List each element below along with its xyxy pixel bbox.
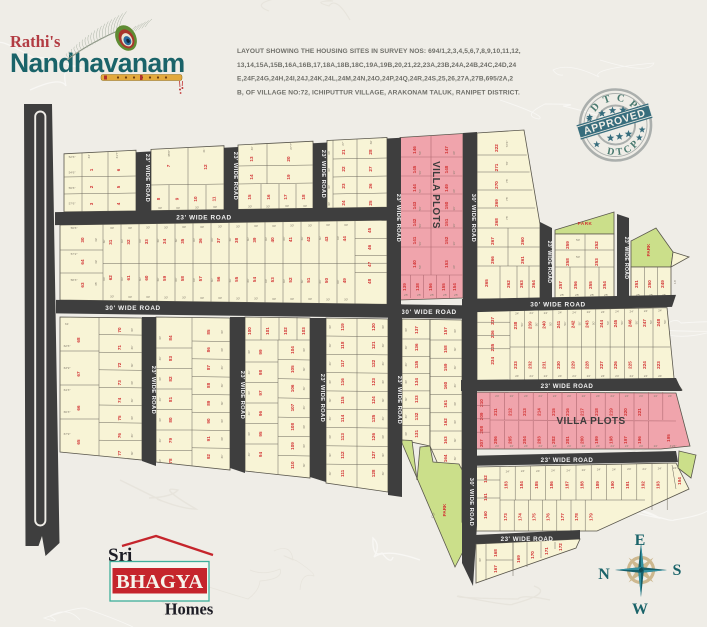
svg-text:25: 25 (368, 200, 373, 206)
svg-text:96: 96 (258, 411, 263, 417)
svg-text:20: 20 (286, 156, 291, 162)
svg-text:30': 30' (452, 170, 456, 174)
svg-text:190: 190 (610, 481, 615, 489)
svg-text:50': 50' (418, 170, 422, 174)
svg-text:66'3": 66'3" (64, 410, 71, 414)
svg-text:23' WIDE ROAD: 23' WIDE ROAD (541, 457, 594, 464)
svg-text:218: 218 (594, 408, 599, 416)
svg-text:212: 212 (508, 408, 513, 416)
svg-text:260: 260 (520, 237, 525, 245)
svg-text:184: 184 (519, 481, 524, 489)
svg-text:30': 30' (220, 436, 224, 440)
svg-text:123: 123 (371, 378, 376, 386)
svg-text:194: 194 (677, 477, 682, 485)
svg-text:30': 30' (200, 296, 204, 300)
svg-text:255: 255 (588, 281, 593, 289)
svg-text:24': 24' (515, 374, 519, 378)
svg-text:99: 99 (258, 349, 263, 355)
svg-text:263: 263 (519, 280, 524, 288)
svg-text:40': 40' (247, 432, 251, 436)
svg-text:24': 24' (610, 444, 614, 448)
svg-text:114: 114 (340, 414, 345, 422)
svg-text:30': 30' (381, 325, 385, 329)
svg-text:30': 30' (381, 379, 385, 383)
svg-text:19: 19 (286, 174, 291, 180)
svg-text:54'6": 54'6" (69, 171, 76, 175)
svg-text:30' WIDE ROAD: 30' WIDE ROAD (470, 194, 476, 242)
svg-text:30': 30' (328, 361, 332, 365)
svg-text:60': 60' (192, 277, 196, 281)
svg-text:49': 49' (94, 260, 98, 264)
svg-text:90: 90 (206, 418, 211, 424)
svg-text:30' WIDE ROAD: 30' WIDE ROAD (401, 309, 456, 316)
svg-text:24': 24' (658, 467, 662, 471)
svg-text:54: 54 (252, 277, 257, 283)
svg-text:79: 79 (168, 438, 173, 444)
svg-text:88: 88 (206, 382, 211, 388)
svg-text:168: 168 (493, 549, 498, 557)
svg-text:259: 259 (565, 241, 570, 249)
svg-text:30': 30' (328, 343, 332, 347)
svg-text:230: 230 (556, 361, 561, 369)
svg-text:264: 264 (531, 280, 536, 288)
svg-text:24': 24' (582, 468, 586, 472)
svg-text:E,24F,24G,24H,24I,24J,24K,24L,: E,24F,24G,24H,24I,24J,24K,24L,24M,24N,24… (237, 76, 513, 83)
svg-text:60': 60' (156, 238, 160, 242)
svg-text:30': 30' (453, 383, 457, 387)
svg-text:240: 240 (542, 321, 547, 329)
svg-text:24': 24' (625, 394, 629, 398)
svg-text:30': 30' (328, 379, 332, 383)
svg-text:67: 67 (76, 371, 81, 377)
svg-text:211: 211 (493, 408, 498, 416)
svg-text:30': 30' (220, 365, 224, 369)
svg-text:41': 41' (202, 148, 206, 152)
svg-text:199: 199 (594, 436, 599, 444)
svg-text:24': 24' (642, 467, 646, 471)
svg-text:24': 24' (639, 394, 643, 398)
svg-text:4: 4 (116, 202, 121, 205)
svg-text:176: 176 (546, 513, 551, 521)
svg-text:24': 24' (625, 444, 629, 448)
svg-text:60': 60' (336, 235, 340, 239)
svg-text:153: 153 (444, 260, 449, 268)
svg-text:50': 50' (649, 320, 653, 324)
svg-text:21: 21 (341, 149, 346, 155)
svg-text:188: 188 (580, 481, 585, 489)
svg-text:87: 87 (206, 365, 211, 371)
svg-text:56'6": 56'6" (71, 226, 78, 230)
svg-text:219: 219 (608, 408, 613, 416)
svg-text:237: 237 (490, 317, 495, 325)
svg-text:257: 257 (558, 281, 563, 289)
svg-text:60': 60' (174, 277, 178, 281)
svg-text:57'2": 57'2" (71, 252, 78, 256)
svg-text:24': 24' (615, 310, 619, 314)
svg-text:128: 128 (371, 469, 376, 477)
svg-text:157: 157 (443, 327, 448, 335)
svg-text:24': 24' (654, 444, 658, 448)
svg-text:60': 60' (174, 238, 178, 242)
svg-text:187: 187 (564, 481, 569, 489)
svg-text:50': 50' (418, 189, 422, 193)
svg-text:40': 40' (247, 370, 251, 374)
svg-text:50': 50' (576, 255, 580, 259)
svg-text:23' WIDE ROAD: 23' WIDE ROAD (232, 152, 238, 200)
svg-text:262: 262 (506, 280, 511, 288)
svg-text:52: 52 (288, 277, 293, 283)
svg-text:24': 24' (510, 394, 514, 398)
svg-text:151: 151 (444, 218, 449, 226)
svg-text:24': 24' (524, 444, 528, 448)
svg-text:60': 60' (102, 239, 106, 243)
svg-text:232: 232 (527, 361, 532, 369)
svg-text:76: 76 (117, 433, 122, 439)
svg-text:258: 258 (565, 258, 570, 266)
svg-text:23' WIDE ROAD: 23' WIDE ROAD (176, 214, 231, 221)
svg-text:40': 40' (247, 452, 251, 456)
svg-text:40': 40' (250, 146, 254, 150)
svg-text:30': 30' (302, 405, 306, 409)
svg-text:183: 183 (504, 481, 509, 489)
svg-text:95: 95 (258, 431, 263, 437)
svg-text:30': 30' (218, 296, 222, 300)
svg-text:50': 50' (592, 321, 596, 325)
svg-text:145: 145 (412, 165, 417, 173)
svg-text:162: 162 (443, 418, 448, 426)
svg-text:60': 60' (282, 279, 286, 283)
svg-text:228: 228 (585, 361, 590, 369)
svg-text:60': 60' (210, 237, 214, 241)
svg-text:30': 30' (344, 298, 348, 302)
svg-text:30': 30' (302, 386, 306, 390)
svg-text:30': 30' (290, 224, 294, 228)
svg-text:50': 50' (418, 206, 422, 210)
svg-text:189: 189 (595, 481, 600, 489)
svg-text:63: 63 (80, 282, 85, 288)
svg-text:30': 30' (328, 434, 332, 438)
svg-text:24': 24' (551, 469, 555, 473)
svg-text:173: 173 (503, 513, 508, 521)
svg-text:11: 11 (212, 196, 217, 201)
svg-text:24': 24' (587, 310, 591, 314)
svg-text:116: 116 (340, 378, 345, 386)
svg-text:33': 33' (327, 151, 331, 155)
svg-text:64'3": 64'3" (64, 388, 71, 392)
svg-text:24': 24' (544, 374, 548, 378)
svg-text:226: 226 (613, 361, 618, 369)
svg-text:115: 115 (340, 396, 345, 404)
svg-text:60': 60' (282, 236, 286, 240)
svg-text:30': 30' (381, 453, 385, 457)
svg-text:75: 75 (117, 415, 122, 421)
svg-text:24': 24' (566, 468, 570, 472)
svg-text:24': 24' (615, 374, 619, 378)
svg-text:24': 24' (644, 309, 648, 313)
svg-text:167: 167 (493, 565, 498, 573)
svg-text:30': 30' (176, 206, 180, 210)
svg-text:142: 142 (412, 218, 417, 226)
svg-text:132: 132 (414, 412, 419, 420)
svg-text:30': 30' (182, 225, 186, 229)
svg-text:VILLA PLOTS: VILLA PLOTS (430, 161, 441, 229)
svg-text:1: 1 (89, 168, 94, 171)
svg-text:233: 233 (513, 361, 518, 369)
svg-text:39: 39 (252, 237, 257, 243)
svg-text:24': 24' (529, 311, 533, 315)
svg-text:203: 203 (536, 436, 541, 444)
svg-text:40': 40' (158, 336, 162, 340)
svg-text:30': 30' (146, 295, 150, 299)
svg-text:111: 111 (340, 469, 345, 477)
svg-text:60': 60' (264, 236, 268, 240)
svg-text:24': 24' (597, 468, 601, 472)
svg-text:23' WIDE ROAD: 23' WIDE ROAD (395, 194, 401, 242)
svg-text:205: 205 (508, 436, 513, 444)
svg-text:248: 248 (656, 318, 661, 326)
svg-text:30': 30' (327, 168, 331, 172)
svg-text:17: 17 (283, 194, 288, 200)
svg-text:23' WIDE ROAD: 23' WIDE ROAD (319, 374, 325, 422)
svg-text:24': 24' (515, 312, 519, 316)
svg-text:40': 40' (247, 391, 251, 395)
svg-text:50': 50' (520, 322, 524, 326)
svg-text:36': 36' (369, 140, 373, 144)
svg-text:200: 200 (580, 436, 585, 444)
svg-text:34: 34 (162, 238, 167, 244)
svg-text:30': 30' (130, 451, 134, 455)
svg-text:146: 146 (412, 146, 417, 154)
svg-text:30' WIDE ROAD: 30' WIDE ROAD (530, 302, 585, 309)
svg-text:30': 30' (452, 265, 456, 269)
svg-text:24': 24' (567, 444, 571, 448)
svg-text:270: 270 (494, 181, 499, 189)
svg-text:72'6": 72'6" (505, 141, 509, 148)
svg-text:40: 40 (270, 237, 275, 243)
svg-text:60': 60' (246, 237, 250, 241)
svg-text:30': 30' (453, 438, 457, 442)
svg-text:103: 103 (301, 327, 306, 335)
svg-text:30': 30' (158, 206, 162, 210)
svg-text:30': 30' (182, 296, 186, 300)
svg-text:170: 170 (530, 551, 535, 559)
svg-text:223: 223 (656, 361, 661, 369)
svg-text:Nandhavanam: Nandhavanam (10, 48, 185, 78)
svg-text:61': 61' (65, 322, 69, 326)
svg-text:30': 30' (404, 431, 408, 435)
svg-text:83: 83 (168, 356, 173, 362)
svg-text:164: 164 (443, 454, 448, 462)
svg-text:268: 268 (494, 218, 499, 226)
svg-text:24': 24' (596, 394, 600, 398)
svg-text:10: 10 (193, 196, 198, 202)
svg-text:16: 16 (266, 194, 271, 200)
svg-text:50': 50' (534, 322, 538, 326)
svg-text:216: 216 (565, 408, 570, 416)
svg-text:45: 45 (367, 227, 372, 233)
svg-text:131: 131 (414, 430, 419, 438)
svg-text:25': 25' (560, 293, 564, 297)
svg-text:89: 89 (206, 400, 211, 406)
svg-text:BHAGYA: BHAGYA (116, 571, 203, 593)
svg-text:24': 24' (658, 374, 662, 378)
svg-text:191: 191 (625, 481, 630, 489)
svg-text:221: 221 (637, 408, 642, 416)
svg-text:60': 60' (300, 236, 304, 240)
svg-text:24': 24' (629, 309, 633, 313)
svg-text:24': 24' (610, 394, 614, 398)
svg-text:72: 72 (117, 362, 122, 368)
svg-text:59: 59 (162, 275, 167, 281)
svg-text:246: 246 (628, 319, 633, 327)
svg-text:24': 24' (668, 394, 672, 398)
svg-text:215: 215 (551, 408, 556, 416)
svg-text:143: 143 (412, 201, 417, 209)
svg-text:154: 154 (452, 283, 457, 291)
svg-text:44: 44 (342, 236, 347, 242)
svg-text:109: 109 (290, 442, 295, 450)
svg-text:30': 30' (200, 225, 204, 229)
svg-text:137: 137 (414, 326, 419, 334)
svg-text:251: 251 (634, 280, 639, 288)
svg-text:30': 30' (130, 433, 134, 437)
svg-text:235: 235 (490, 343, 495, 351)
svg-text:5: 5 (116, 185, 121, 188)
svg-text:52'6": 52'6" (69, 155, 76, 159)
svg-text:149: 149 (444, 184, 449, 192)
svg-text:30': 30' (236, 224, 240, 228)
svg-text:31: 31 (108, 239, 113, 245)
svg-text:24': 24' (544, 311, 548, 315)
svg-text:24': 24' (654, 394, 658, 398)
svg-text:245: 245 (613, 319, 618, 327)
svg-text:160: 160 (443, 381, 448, 389)
svg-text:58: 58 (180, 276, 185, 282)
svg-text:30': 30' (130, 328, 134, 332)
svg-text:24': 24' (521, 469, 525, 473)
svg-text:6: 6 (116, 168, 121, 171)
svg-text:30': 30' (220, 419, 224, 423)
svg-text:250: 250 (647, 280, 652, 288)
svg-text:23' WIDE ROAD: 23' WIDE ROAD (501, 536, 554, 543)
svg-text:38'8": 38'8" (167, 150, 171, 157)
svg-text:106: 106 (290, 384, 295, 392)
svg-text:33: 33 (144, 239, 149, 245)
svg-text:50': 50' (606, 320, 610, 324)
svg-text:201: 201 (565, 436, 570, 444)
svg-text:33': 33' (87, 154, 91, 158)
svg-text:78': 78' (505, 161, 509, 165)
svg-text:30': 30' (130, 345, 134, 349)
svg-text:23' WIDE ROAD: 23' WIDE ROAD (623, 237, 629, 280)
svg-text:60: 60 (144, 275, 149, 281)
svg-text:98: 98 (258, 370, 263, 376)
svg-text:40': 40' (158, 397, 162, 401)
svg-text:24': 24' (538, 394, 542, 398)
svg-text:23' WIDE ROAD: 23' WIDE ROAD (144, 154, 150, 202)
svg-text:148: 148 (444, 165, 449, 173)
svg-text:74: 74 (117, 397, 122, 403)
svg-text:24': 24' (538, 444, 542, 448)
svg-text:204: 204 (522, 436, 527, 444)
svg-text:46: 46 (367, 244, 372, 250)
svg-text:40': 40' (247, 411, 251, 415)
svg-text:14: 14 (249, 174, 254, 180)
svg-text:193: 193 (656, 481, 661, 489)
svg-text:30': 30' (404, 328, 408, 332)
svg-text:30': 30' (452, 189, 456, 193)
svg-text:179: 179 (588, 513, 593, 521)
svg-text:49': 49' (94, 238, 98, 242)
svg-text:159: 159 (443, 363, 448, 371)
svg-text:126: 126 (371, 433, 376, 441)
svg-text:23: 23 (341, 183, 346, 189)
svg-text:30': 30' (110, 295, 114, 299)
svg-text:40': 40' (158, 418, 162, 422)
svg-text:13,14,15A,15B,16A,16B,17,18A,1: 13,14,15A,15B,16A,16B,17,18A,18B,18C,19A… (237, 62, 516, 69)
svg-text:23' WIDE ROAD: 23' WIDE ROAD (541, 383, 594, 390)
svg-text:63'9": 63'9" (64, 366, 71, 370)
svg-text:30' WIDE ROAD: 30' WIDE ROAD (105, 305, 160, 312)
svg-text:60': 60' (228, 237, 232, 241)
svg-text:70: 70 (117, 327, 122, 333)
svg-text:30': 30' (254, 224, 258, 228)
svg-text:27': 27' (341, 141, 345, 145)
svg-text:30': 30' (404, 414, 408, 418)
svg-text:W: W (632, 601, 648, 618)
svg-text:62: 62 (108, 275, 113, 281)
svg-text:23' WIDE ROAD: 23' WIDE ROAD (546, 241, 552, 284)
svg-text:24': 24' (639, 444, 643, 448)
svg-text:30': 30' (254, 297, 258, 301)
svg-text:30': 30' (130, 380, 134, 384)
svg-text:234: 234 (490, 357, 495, 365)
svg-text:24': 24' (536, 469, 540, 473)
svg-text:45': 45' (94, 282, 98, 286)
svg-text:50': 50' (549, 321, 553, 325)
svg-text:104: 104 (290, 346, 295, 354)
svg-text:43: 43 (324, 236, 329, 242)
svg-text:175: 175 (532, 513, 537, 521)
svg-text:Homes: Homes (165, 600, 214, 619)
svg-text:30': 30' (220, 383, 224, 387)
svg-text:110: 110 (290, 461, 295, 469)
svg-text:N: N (598, 566, 610, 583)
svg-text:254: 254 (602, 281, 607, 289)
svg-text:30': 30' (213, 205, 217, 209)
svg-text:LAYOUT SHOWING THE HOUSING SIT: LAYOUT SHOWING THE HOUSING SITES IN SURV… (237, 48, 521, 55)
svg-text:55: 55 (234, 276, 239, 282)
svg-text:30': 30' (266, 204, 270, 208)
svg-text:61: 61 (126, 275, 131, 281)
svg-text:269: 269 (494, 199, 499, 207)
svg-text:136: 136 (414, 343, 419, 351)
svg-text:119: 119 (340, 323, 345, 331)
svg-text:3: 3 (89, 202, 94, 205)
svg-text:30': 30' (302, 444, 306, 448)
svg-text:163: 163 (443, 436, 448, 444)
svg-text:30': 30' (478, 558, 482, 562)
svg-text:36: 36 (198, 238, 203, 244)
svg-text:127: 127 (371, 451, 376, 459)
svg-text:60': 60' (102, 276, 106, 280)
svg-text:30': 30' (146, 226, 150, 230)
svg-text:113: 113 (340, 433, 345, 441)
svg-text:23' WIDE ROAD: 23' WIDE ROAD (239, 371, 245, 419)
svg-text:172: 172 (558, 543, 563, 551)
svg-text:140: 140 (412, 260, 417, 268)
svg-text:PARK: PARK (578, 221, 593, 226)
